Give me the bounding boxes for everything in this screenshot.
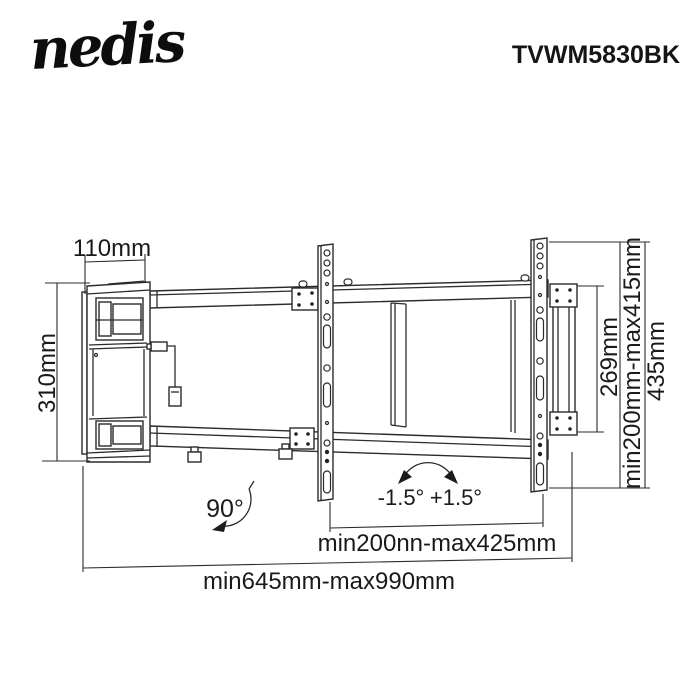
adapter-top-plate: [550, 284, 577, 307]
center-vesa-rail: [318, 244, 333, 501]
product-sheet: nedis TVWM5830BK: [0, 0, 700, 700]
label-310mm: 310mm: [34, 333, 61, 413]
cable-wire: [167, 346, 175, 387]
bottom-arm-plate: [290, 428, 314, 449]
label-tilt-positive: +1.5°: [430, 485, 482, 510]
dimension-adapter-height: 269mm: [577, 286, 623, 432]
cable-plug: [169, 387, 181, 406]
right-strut: [511, 300, 515, 433]
bottom-hinge: [96, 421, 143, 449]
right-vesa-rail: [531, 238, 547, 492]
label-90deg: 90°: [206, 495, 244, 523]
spacer-foot: [188, 447, 201, 462]
extension-arms: [150, 275, 548, 462]
rail-hook: [521, 275, 529, 281]
tv-adapter-bracket: [550, 284, 577, 435]
wall-plate: [82, 292, 87, 454]
label-min200-max425: min200nn-max425mm: [318, 530, 557, 557]
rail-hook: [344, 279, 352, 285]
bottom-arm: [150, 426, 548, 459]
wall-bracket: [82, 281, 150, 462]
rail-hook: [299, 281, 307, 287]
power-cable: [147, 342, 181, 406]
swivel-angle-annotation: 90°: [206, 481, 254, 532]
top-arm-plate: [292, 288, 318, 310]
label-min645-max990: min645mm-max990mm: [203, 568, 455, 595]
label-110mm: 110mm: [73, 235, 151, 262]
cable-connector: [151, 342, 167, 351]
dimension-rail-height: 435mm: [643, 242, 670, 488]
label-tilt-negative: -1.5°: [378, 485, 425, 510]
label-435mm: 435mm: [643, 321, 670, 401]
adapter-bottom-plate: [550, 412, 577, 435]
middle-strut: [391, 303, 406, 427]
tilt-angle-annotation: -1.5° +1.5°: [378, 463, 482, 510]
top-hinge: [96, 298, 143, 340]
technical-drawing: 110mm 310mm 269mm min200mm-max415mm 435m…: [0, 0, 700, 700]
label-min200-max415: min200mm-max415mm: [619, 237, 646, 489]
